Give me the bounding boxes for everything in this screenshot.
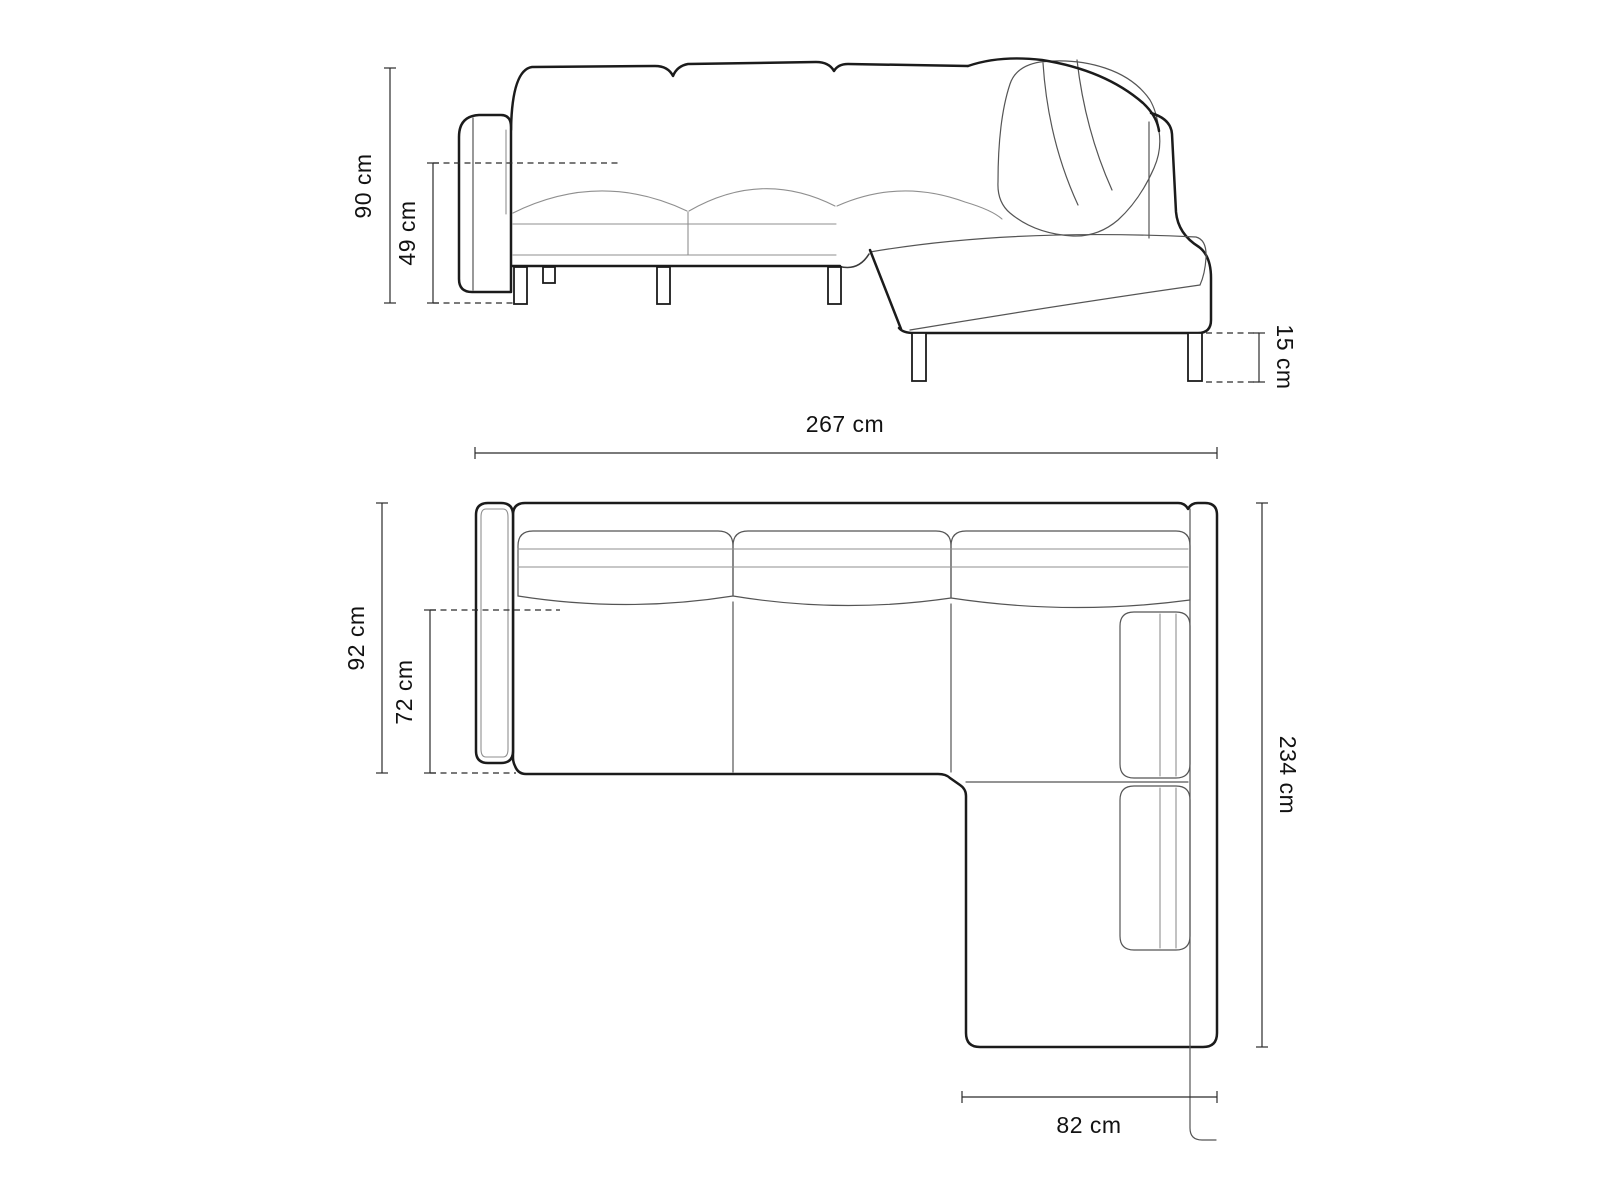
front-elevation-view: 90 cm 49 cm 15 cm (350, 58, 1298, 389)
dim-total-width-label: 267 cm (806, 411, 884, 437)
plan-body-outline (513, 503, 1217, 1047)
chaise-leg-right (1188, 333, 1202, 381)
dim-total-length: 234 cm (1256, 503, 1301, 1047)
chaise-cushion-bottom-edge (910, 285, 1200, 330)
sofa-back-outline (511, 62, 968, 130)
dim-total-height-label: 90 cm (350, 153, 376, 218)
dim-seat-height-label: 49 cm (394, 200, 420, 265)
corner-base-curve (838, 254, 869, 268)
sofa-back-leg (543, 267, 555, 283)
dim-chaise-width: 82 cm (962, 1091, 1217, 1138)
dim-total-depth: 92 cm (343, 503, 388, 773)
dim-total-length-label: 234 cm (1275, 736, 1301, 814)
seat-cushion-arc-left (513, 191, 687, 213)
seat-cushion-arc-mid (689, 189, 835, 211)
chaise-front-left-edge (870, 250, 901, 329)
left-armrest (459, 115, 511, 292)
dimension-drawing-page: 90 cm 49 cm 15 cm 267 cm (0, 0, 1600, 1200)
dim-total-width: 267 cm (475, 411, 1217, 459)
sofa-front-leg-right (828, 267, 841, 304)
sofa-dimension-diagram: 90 cm 49 cm 15 cm 267 cm (0, 0, 1600, 1200)
dim-total-height: 90 cm (350, 68, 396, 303)
dim-leg-height-label: 15 cm (1272, 324, 1298, 389)
dim-chaise-width-label: 82 cm (1056, 1112, 1121, 1138)
sofa-front-leg-left (514, 267, 527, 304)
corner-back-line (837, 191, 1002, 219)
dim-seat-depth-label: 72 cm (391, 659, 417, 724)
dim-leg-height: 15 cm (1206, 324, 1298, 389)
headrest-pillow (998, 61, 1160, 236)
chaise-leg-left (912, 333, 926, 381)
dim-total-depth-label: 92 cm (343, 605, 369, 670)
sofa-front-leg-mid (657, 267, 670, 304)
chaise-cushion-top-edge (870, 235, 1206, 285)
top-plan-view: 92 cm 72 cm 234 cm 82 cm (343, 503, 1301, 1140)
